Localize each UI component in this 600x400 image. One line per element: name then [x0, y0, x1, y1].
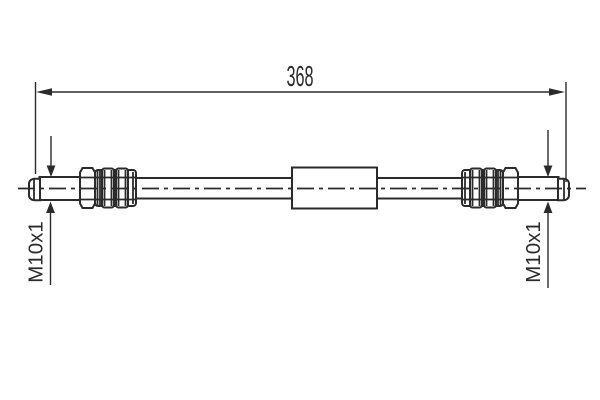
up-arrow-icon	[544, 202, 553, 214]
thread-label-right: M10x1	[522, 221, 545, 283]
brake-hose-diagram: 368 M10x1 M10x1	[0, 0, 600, 400]
down-arrow-icon	[544, 166, 553, 178]
dimension-arrow-left-icon	[36, 88, 52, 95]
up-arrow-icon	[46, 202, 55, 214]
dimension-arrow-right-icon	[549, 88, 565, 95]
hose-tube-right-segment	[377, 178, 461, 199]
thread-callout-left: M10x1	[25, 136, 56, 285]
technical-drawing-page: 368 M10x1 M10x1	[0, 0, 600, 400]
dimension-overall-length: 368	[36, 60, 567, 182]
thread-callout-right: M10x1	[522, 130, 552, 288]
down-arrow-icon	[47, 166, 56, 178]
thread-label-left: M10x1	[25, 221, 48, 283]
dimension-label: 368	[286, 60, 313, 92]
